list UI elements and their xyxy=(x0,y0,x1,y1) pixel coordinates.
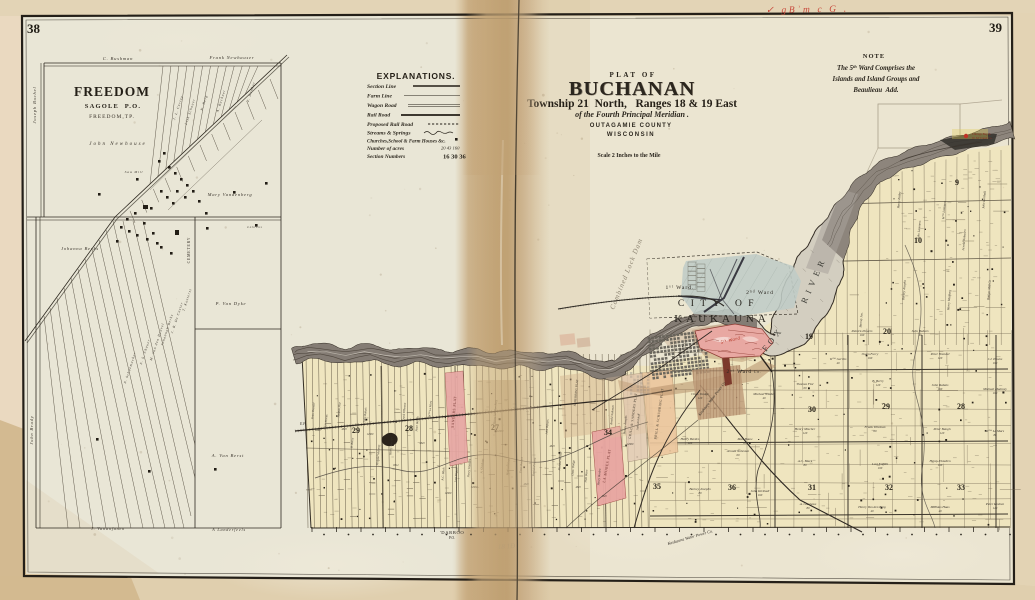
svg-text:W. M′ Canal Co.: W. M′ Canal Co. xyxy=(972,136,992,140)
svg-text:38: 38 xyxy=(27,21,41,36)
svg-text:P. Van Dyke: P. Van Dyke xyxy=(215,301,247,306)
svg-text:100: 100 xyxy=(993,391,998,395)
svg-text:60: 60 xyxy=(737,453,741,457)
svg-text:John Newhouse: John Newhouse xyxy=(89,142,147,147)
svg-text:160: 160 xyxy=(860,333,865,337)
svg-text:Section Line: Section Line xyxy=(367,84,397,90)
svg-text:32: 32 xyxy=(885,483,893,492)
svg-text:Wagon Road: Wagon Road xyxy=(367,103,397,109)
svg-text:A. Van Berst: A. Van Berst xyxy=(211,453,244,458)
svg-text:19: 19 xyxy=(805,332,813,341)
svg-text:36: 36 xyxy=(728,483,736,492)
svg-text:80: 80 xyxy=(804,463,808,467)
svg-text:9: 9 xyxy=(955,178,959,187)
svg-text:OUTAGAMIE COUNTY: OUTAGAMIE COUNTY xyxy=(590,123,672,129)
svg-text:40: 40 xyxy=(871,509,875,513)
svg-text:120: 120 xyxy=(803,431,808,435)
svg-text:34: 34 xyxy=(604,428,612,437)
svg-text:Scale 2 Inches to the Mile: Scale 2 Inches to the Mile xyxy=(598,153,661,159)
svg-text:Township 21 North, Ranges 1: Township 21 North, Ranges 18 & 19 East xyxy=(527,98,737,110)
svg-text:8012: 8012 xyxy=(393,464,399,467)
svg-text:CEMETERY: CEMETERY xyxy=(187,237,191,264)
svg-text:EXPLANATIONS.: EXPLANATIONS. xyxy=(377,71,456,81)
svg-text:J. Vananfanen: J. Vananfanen xyxy=(91,526,125,531)
svg-text:4043: 4043 xyxy=(549,445,555,448)
svg-text:Churches,School & Farm Houses: Churches,School & Farm Houses &c. xyxy=(367,140,446,145)
svg-text:80: 80 xyxy=(699,491,703,495)
svg-text:160: 160 xyxy=(938,387,943,391)
svg-text:KAUKAUNA: KAUKAUNA xyxy=(674,313,770,325)
svg-text:John Brady: John Brady xyxy=(29,415,34,444)
svg-text:4043: 4043 xyxy=(341,428,347,431)
svg-text:Farm Line: Farm Line xyxy=(367,94,393,100)
svg-text:of the Fourth Principal Meridi: of the Fourth Principal Meridian . xyxy=(575,110,689,119)
svg-text:40: 40 xyxy=(939,509,943,513)
svg-text:SAGOLE P.O.: SAGOLE P.O. xyxy=(85,103,141,110)
svg-text:Saw Mill: Saw Mill xyxy=(125,170,144,174)
svg-text:12060: 12060 xyxy=(445,492,452,495)
svg-text:35: 35 xyxy=(653,482,661,491)
svg-text:120: 120 xyxy=(940,431,945,435)
svg-text:160: 160 xyxy=(758,493,763,497)
svg-text:80: 80 xyxy=(807,506,811,510)
svg-text:100: 100 xyxy=(993,361,998,365)
svg-text:40: 40 xyxy=(763,396,767,400)
svg-text:29: 29 xyxy=(352,426,360,435)
svg-text:E.F.: E.F. xyxy=(299,422,306,426)
svg-text:60: 60 xyxy=(804,386,808,390)
svg-text:20 43 160: 20 43 160 xyxy=(441,146,460,151)
svg-text:Streams & Springs: Streams & Springs xyxy=(367,131,411,137)
svg-text:Beaulieau Add.: Beaulieau Add. xyxy=(852,87,898,94)
svg-text:12060: 12060 xyxy=(367,433,374,436)
svg-text:CITY OF: CITY OF xyxy=(678,299,760,309)
svg-text:Johanna Berks: Johanna Berks xyxy=(61,246,99,251)
svg-text:The 5th Ward Comprises the: The 5th Ward Comprises the xyxy=(837,64,915,72)
svg-text:4043: 4043 xyxy=(601,495,607,498)
svg-text:C. Bushman: C. Bushman xyxy=(103,56,133,61)
svg-text:P.O.: P.O. xyxy=(449,536,455,540)
svg-text:NOTE: NOTE xyxy=(863,53,885,60)
svg-text:160: 160 xyxy=(868,356,873,360)
svg-text:FREEDOM: FREEDOM xyxy=(74,84,150,99)
svg-text:120: 120 xyxy=(993,506,998,510)
svg-text:′DARBOO: ′DARBOO xyxy=(440,530,465,535)
svg-text:60: 60 xyxy=(874,429,878,433)
svg-text:16 30 36: 16 30 36 xyxy=(443,154,467,161)
svg-text:30: 30 xyxy=(808,405,816,414)
svg-text:Islands and Island Groups and: Islands and Island Groups and xyxy=(832,76,920,83)
svg-text:160: 160 xyxy=(938,463,943,467)
svg-text:WISCONSIN: WISCONSIN xyxy=(607,132,655,138)
svg-text:Mary Vandenberg: Mary Vandenberg xyxy=(207,192,253,197)
svg-text:40: 40 xyxy=(837,361,841,365)
svg-text:120: 120 xyxy=(688,441,693,445)
svg-text:40: 40 xyxy=(919,333,923,337)
svg-text:FREEDOM,TP.: FREEDOM,TP. xyxy=(89,114,135,120)
svg-text:120: 120 xyxy=(876,383,881,387)
svg-text:100: 100 xyxy=(878,466,883,470)
svg-text:Rail Road: Rail Road xyxy=(366,113,390,119)
svg-text:Proposed Rail Road: Proposed Rail Road xyxy=(367,122,413,128)
svg-text:A Landerfeels: A Landerfeels xyxy=(211,527,246,532)
svg-text:12060: 12060 xyxy=(627,443,634,446)
svg-text:39: 39 xyxy=(989,20,1003,35)
svg-text:4043: 4043 xyxy=(419,442,425,445)
svg-text:Joseph Bochel: Joseph Bochel xyxy=(32,86,37,123)
svg-text:120: 120 xyxy=(698,396,703,400)
svg-text:33: 33 xyxy=(957,483,965,492)
svg-text:4043: 4043 xyxy=(575,486,581,489)
svg-text:Section Numbers: Section Numbers xyxy=(367,154,405,160)
svg-text:6040: 6040 xyxy=(315,429,321,432)
svg-text:28: 28 xyxy=(957,402,965,411)
svg-text:Frank Newhauser: Frank Newhauser xyxy=(208,55,254,60)
svg-text:Lohrens: Lohrens xyxy=(246,225,262,229)
svg-text:BUCHANAN: BUCHANAN xyxy=(569,78,695,100)
svg-text:28: 28 xyxy=(405,424,413,433)
svg-text:29: 29 xyxy=(882,402,890,411)
svg-text:80: 80 xyxy=(744,441,748,445)
svg-text:✓ gBʾm c G .: ✓ gBʾm c G . xyxy=(766,4,849,16)
svg-text:120: 120 xyxy=(938,356,943,360)
svg-text:80: 80 xyxy=(994,433,998,437)
svg-text:20: 20 xyxy=(883,327,891,336)
svg-text:Number of acres: Number of acres xyxy=(366,146,404,152)
svg-text:31: 31 xyxy=(808,483,816,492)
